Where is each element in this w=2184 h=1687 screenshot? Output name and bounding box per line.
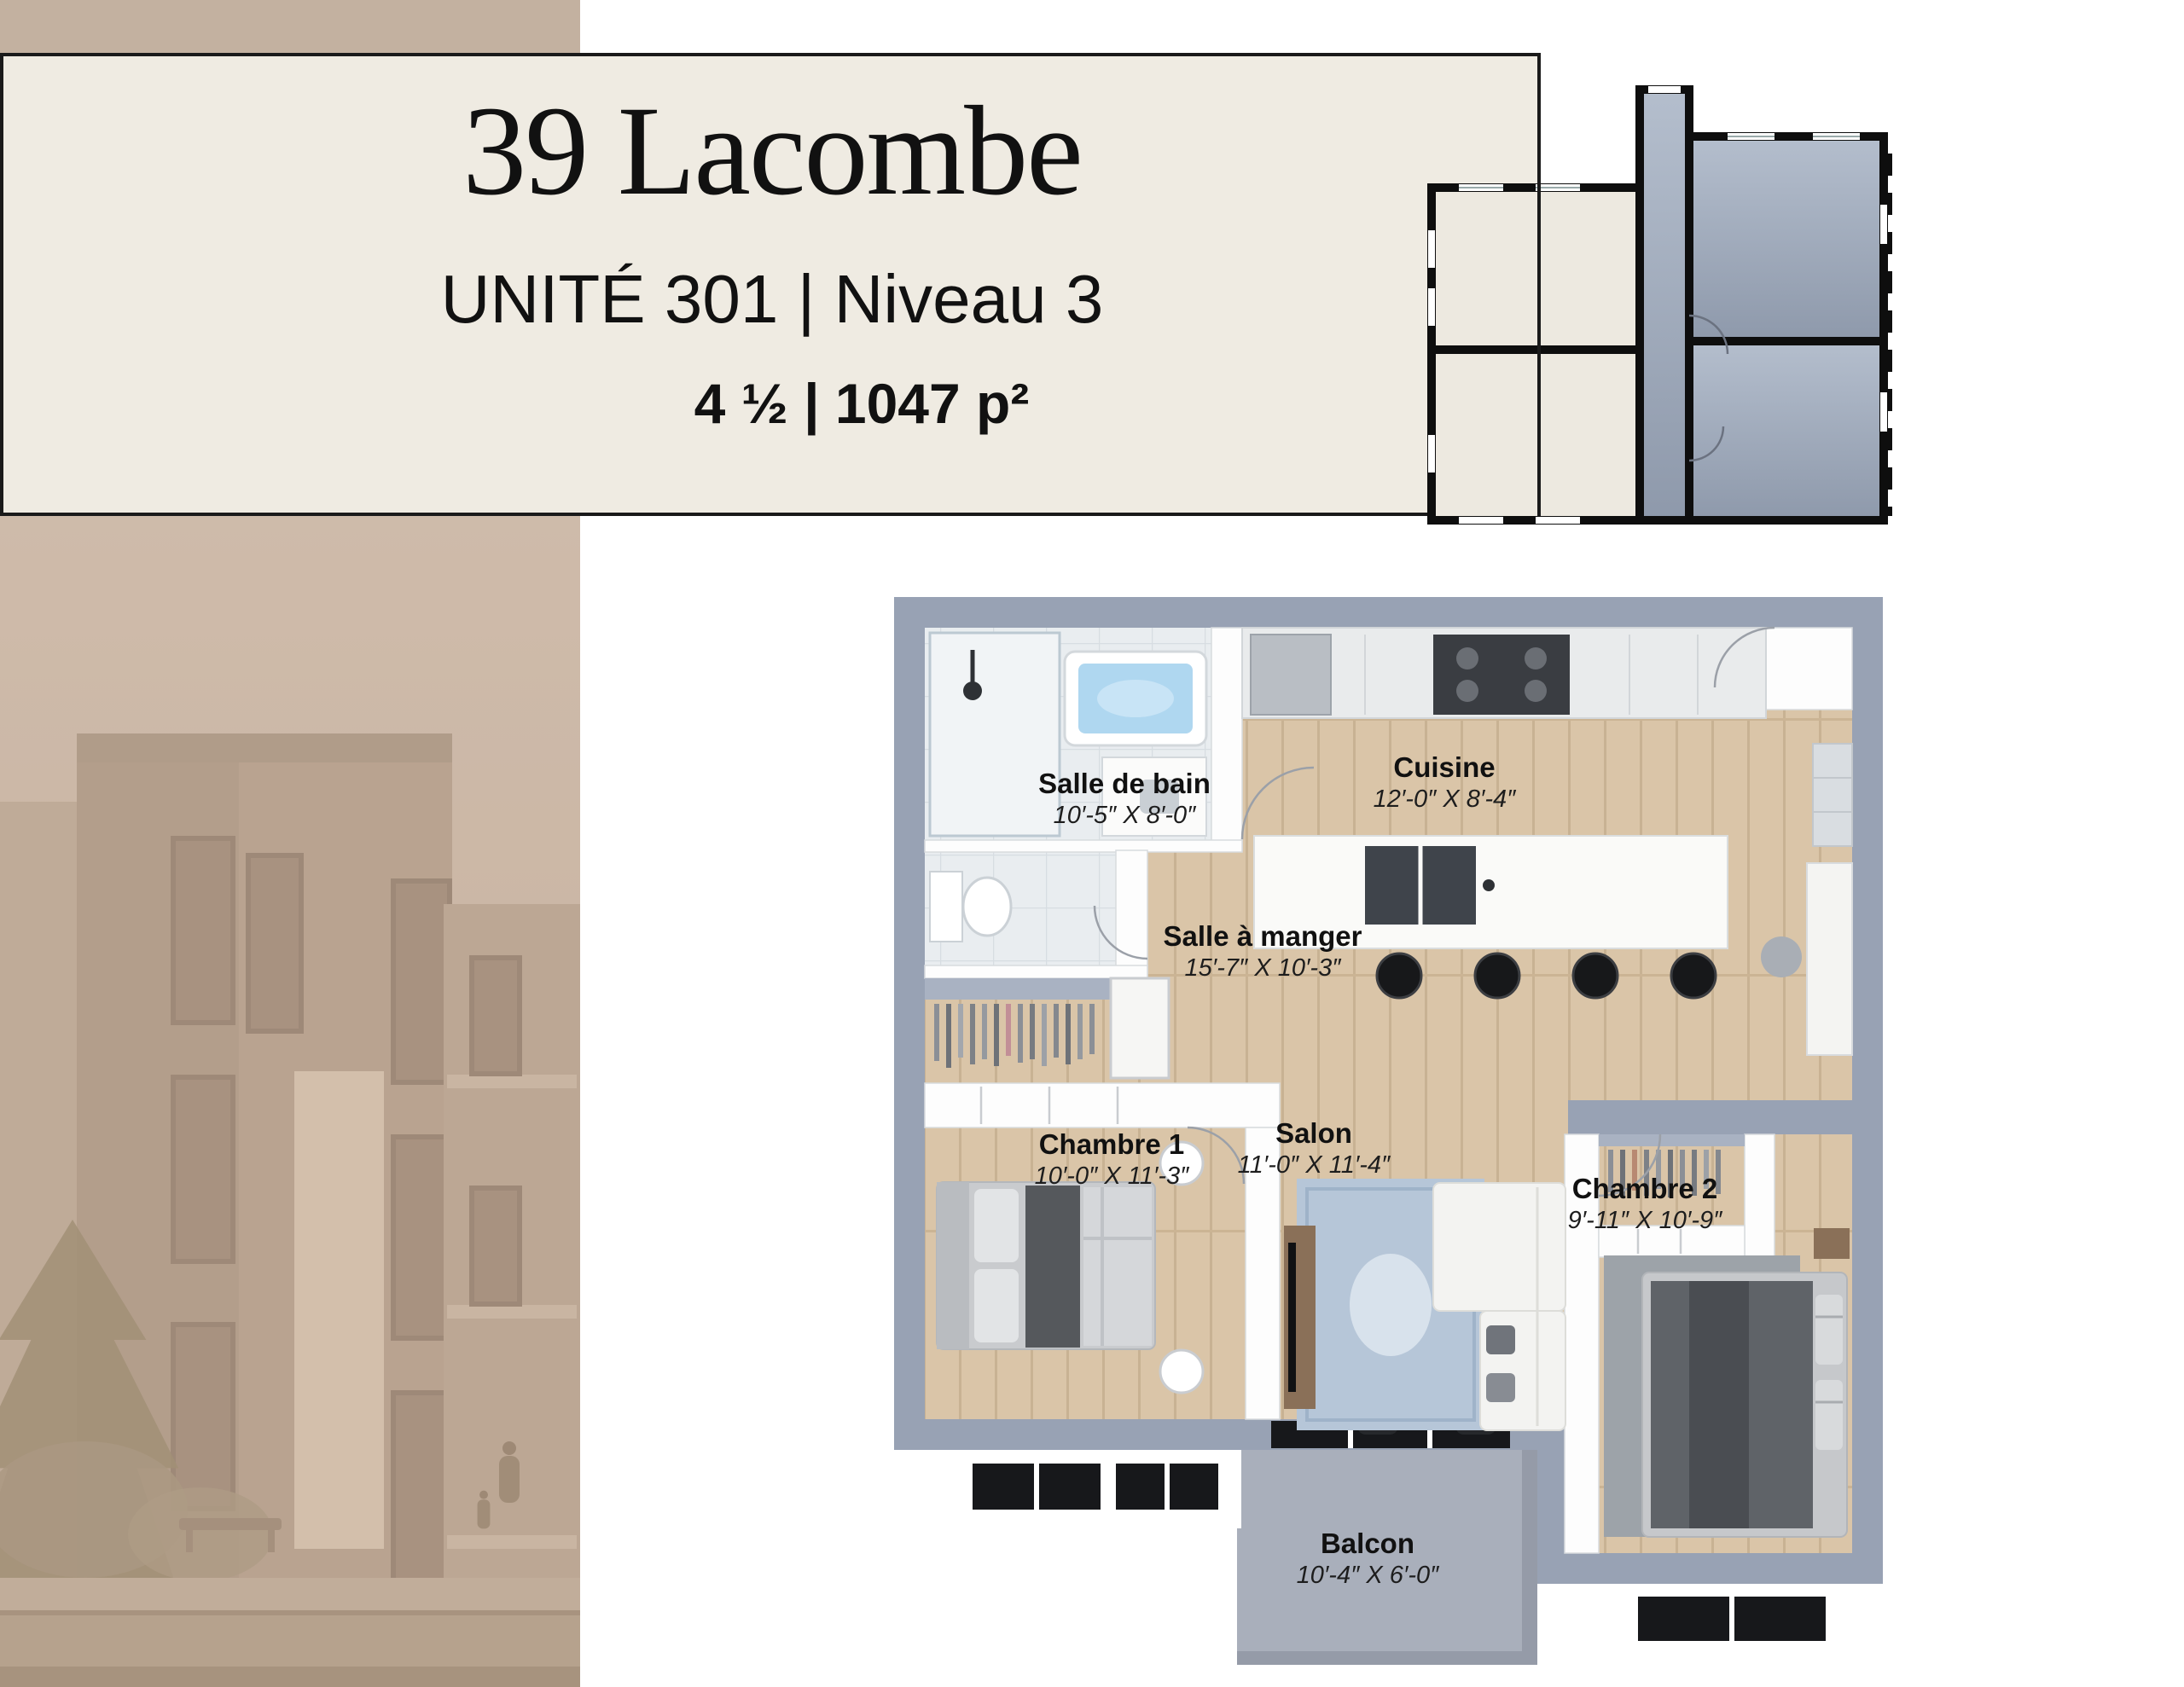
pillow bbox=[974, 1269, 1019, 1342]
pillow bbox=[974, 1189, 1019, 1262]
shower-head-icon bbox=[963, 681, 982, 700]
photo-sepia-overlay bbox=[0, 515, 580, 1687]
title-card-right-border bbox=[1537, 53, 1541, 516]
stove bbox=[1433, 635, 1570, 715]
nightstand bbox=[1160, 1350, 1203, 1393]
label-salle-a-manger: Salle à manger 15′-7″ X 10′-3″ bbox=[1164, 921, 1362, 983]
project-title: 39 Lacombe bbox=[3, 87, 1541, 215]
label-salon: Salon 11′-0″ X 11′-4″ bbox=[1238, 1118, 1391, 1180]
toilet-tank bbox=[930, 872, 962, 942]
keyplan-neighbour-unit bbox=[1428, 184, 1640, 524]
fridge bbox=[1251, 635, 1331, 715]
faucet-icon bbox=[1483, 879, 1495, 891]
level-key-plan bbox=[1425, 60, 1892, 533]
label-salle-de-bain: Salle de bain 10′-5″ X 8′-0″ bbox=[1038, 768, 1211, 830]
unit-stats: 4 ½ | 1047 p² bbox=[93, 374, 1630, 433]
sofa-chaise bbox=[1433, 1183, 1565, 1311]
shelves bbox=[1813, 744, 1852, 846]
building-photo bbox=[0, 515, 580, 1687]
chambre1-top-wall bbox=[925, 1083, 1280, 1128]
chambre2-nightstand bbox=[1814, 1228, 1850, 1259]
sofa-pillow bbox=[1486, 1325, 1515, 1354]
pillow bbox=[1815, 1380, 1843, 1450]
chambre2-throw bbox=[1689, 1281, 1749, 1528]
label-chambre-2: Chambre 2 9′-11″ X 10′-9″ bbox=[1568, 1174, 1722, 1235]
bed-throw bbox=[1025, 1186, 1080, 1348]
utility-appliance bbox=[1111, 978, 1169, 1078]
toilet-bowl bbox=[963, 878, 1011, 936]
label-cuisine: Cuisine 12′-0″ X 8′-4″ bbox=[1374, 752, 1516, 814]
desk-chair bbox=[1761, 936, 1802, 977]
label-balcon: Balcon 10′-4″ X 6′-0″ bbox=[1297, 1528, 1439, 1590]
tv-screen bbox=[1288, 1243, 1296, 1392]
headboard bbox=[937, 1182, 969, 1349]
keyplan-unit-301 bbox=[1689, 133, 1888, 520]
entry-closet bbox=[1766, 628, 1852, 710]
chambre2-top-wall bbox=[1568, 1100, 1852, 1134]
pillow bbox=[1815, 1295, 1843, 1365]
unit-subtitle: UNITÉ 301 | Niveau 3 bbox=[3, 264, 1541, 334]
desk bbox=[1807, 863, 1852, 1055]
label-chambre-1: Chambre 1 10′-0″ X 11′-3″ bbox=[1035, 1129, 1189, 1191]
title-card: 39 Lacombe UNITÉ 301 | Niveau 3 4 ½ | 10… bbox=[0, 53, 1541, 516]
duvet bbox=[1083, 1187, 1152, 1346]
rug-medallion bbox=[1350, 1254, 1432, 1356]
sofa-pillow bbox=[1486, 1373, 1515, 1402]
unit-floor-plan: Salle de bain 10′-5″ X 8′-0″ Cuisine 12′… bbox=[887, 590, 1892, 1678]
keyplan-corridor bbox=[1640, 86, 1689, 520]
floorplan-sheet: 39 Lacombe UNITÉ 301 | Niveau 3 4 ½ | 10… bbox=[0, 0, 2184, 1687]
salon-furniture bbox=[1284, 1179, 1565, 1430]
walkin-shelf bbox=[1599, 1134, 1745, 1146]
